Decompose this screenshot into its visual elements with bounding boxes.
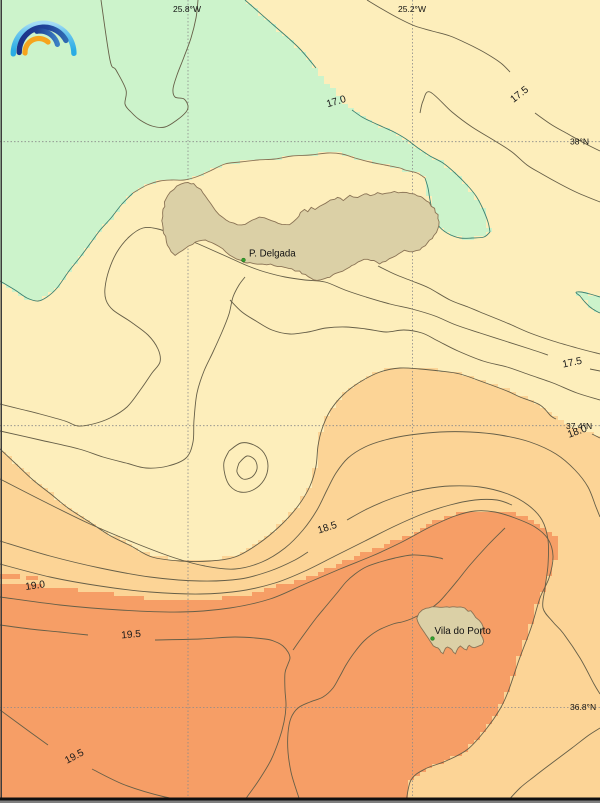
svg-text:38°N: 38°N (570, 137, 589, 147)
svg-text:25.8°W: 25.8°W (173, 4, 201, 14)
svg-text:36.8°N: 36.8°N (570, 702, 596, 712)
svg-text:19.5: 19.5 (121, 629, 142, 642)
svg-text:P. Delgada: P. Delgada (249, 249, 296, 260)
svg-text:25.2°W: 25.2°W (398, 4, 426, 14)
svg-text:Vila do Porto: Vila do Porto (435, 626, 492, 637)
